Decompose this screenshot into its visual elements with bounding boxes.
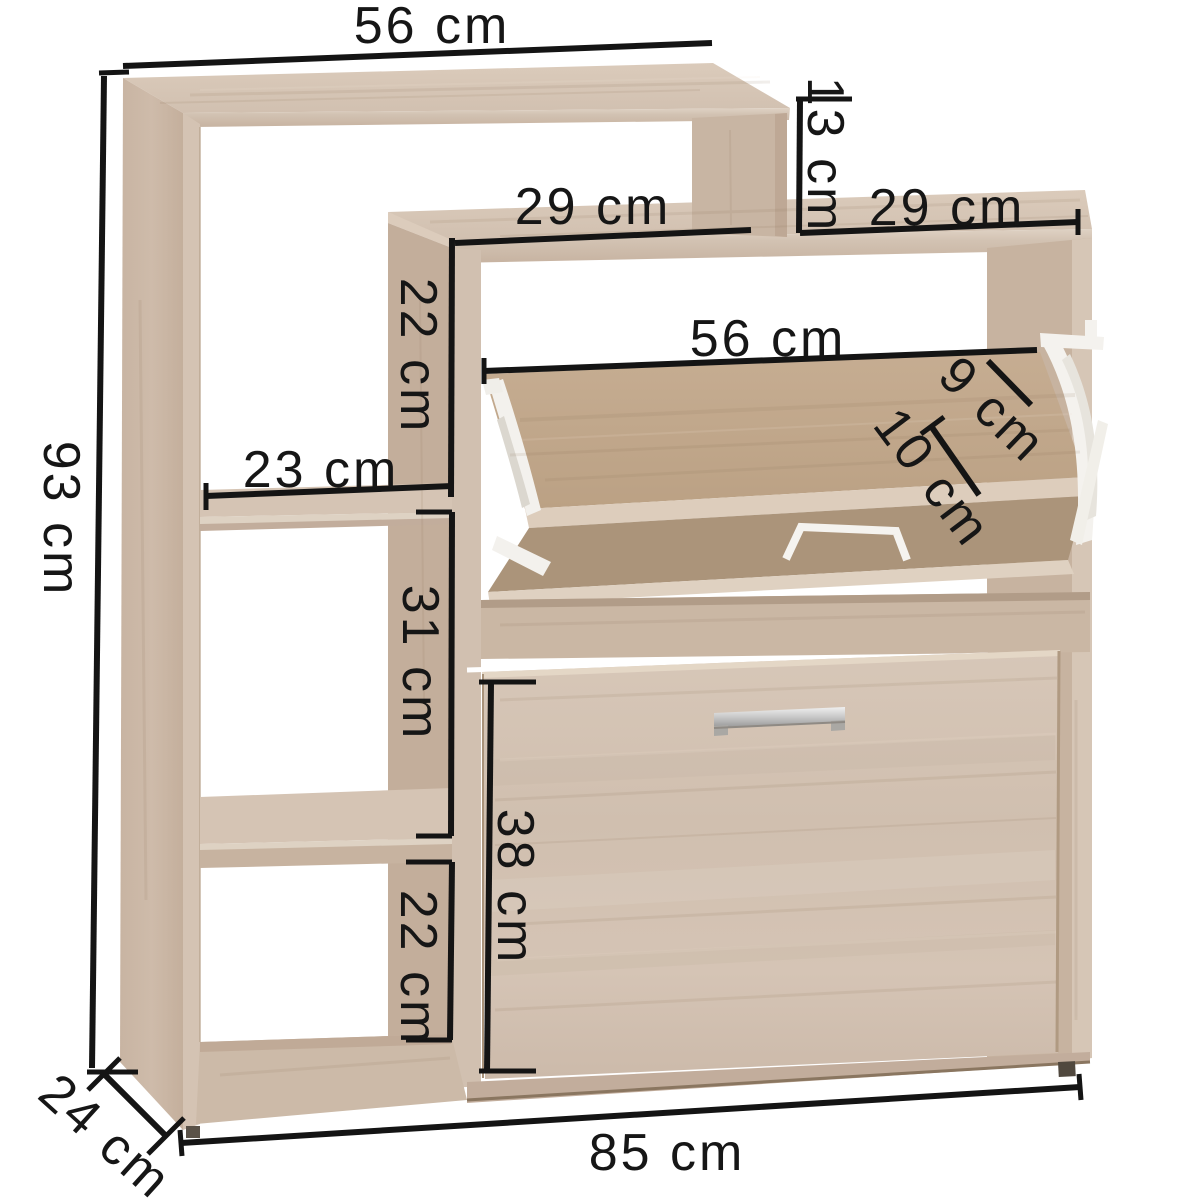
svg-text:29 cm: 29 cm [869, 179, 1026, 237]
svg-text:13 cm: 13 cm [796, 77, 854, 234]
svg-text:31 cm: 31 cm [391, 585, 449, 742]
svg-text:29 cm: 29 cm [515, 178, 672, 236]
svg-text:22 cm: 22 cm [389, 890, 447, 1047]
svg-text:56 cm: 56 cm [690, 310, 847, 368]
svg-text:23 cm: 23 cm [243, 441, 400, 499]
svg-text:22 cm: 22 cm [389, 278, 447, 435]
svg-text:85 cm: 85 cm [589, 1124, 746, 1182]
svg-text:38 cm: 38 cm [486, 809, 544, 966]
svg-text:56 cm: 56 cm [354, 0, 511, 55]
svg-text:93 cm: 93 cm [32, 441, 90, 598]
